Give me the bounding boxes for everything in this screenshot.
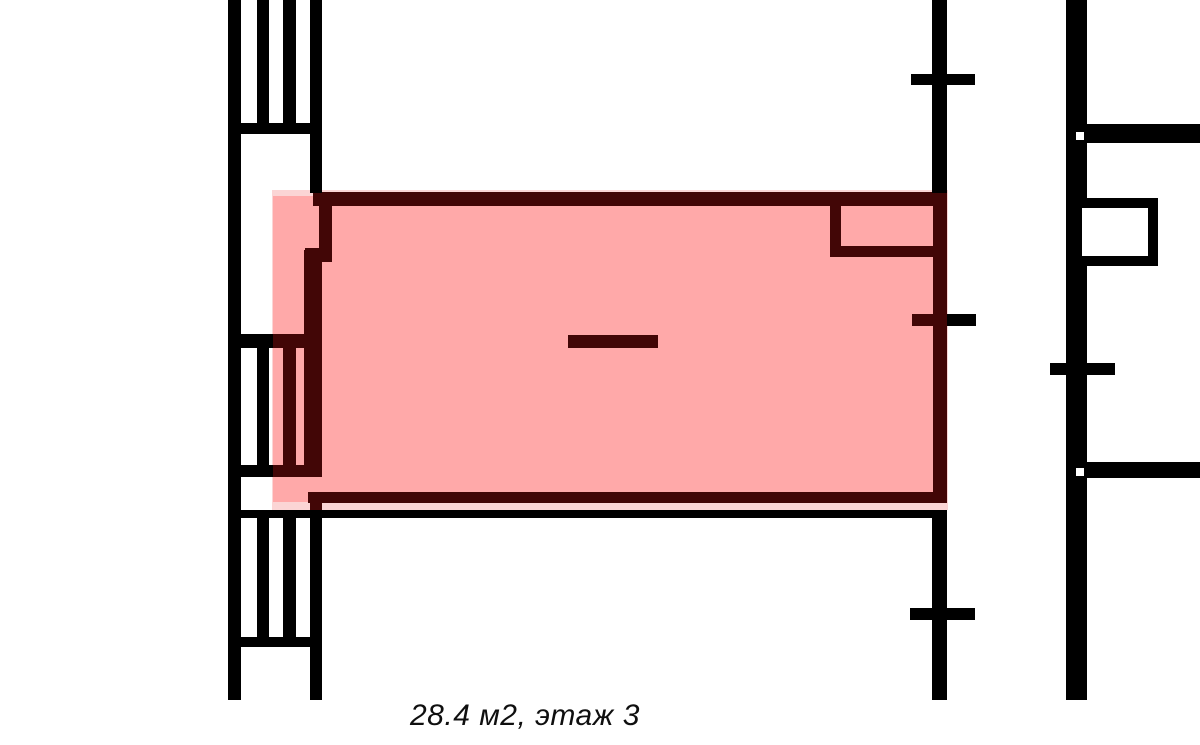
wall-tick-north — [911, 74, 975, 85]
wall-tick-east-outer — [947, 314, 976, 326]
stair-top-rail — [228, 123, 322, 134]
stair-right-wall-lower — [310, 510, 322, 700]
stair-left-wall — [228, 0, 241, 700]
north-wall — [932, 0, 947, 193]
unit-caption: 28.4 м2, этаж 3 — [410, 699, 640, 733]
closet-wall-bottom — [830, 246, 947, 257]
unit-wall-bottom — [308, 492, 947, 503]
interior-wall-segment — [568, 335, 658, 348]
floor-plan: 28.4 м2, этаж 3 — [0, 0, 1200, 745]
stair-bottom-bar-2 — [283, 518, 296, 637]
unit-wall-top — [313, 192, 947, 206]
corridor-wall — [228, 510, 947, 518]
wall-tick-south — [910, 608, 975, 620]
door-gap-upper — [1076, 132, 1084, 140]
unit-room-fill[interactable] — [273, 196, 942, 502]
wall-tick-east-inner — [912, 314, 947, 326]
stair-mid-rail-tinted — [273, 334, 322, 348]
east-shaft-box — [1072, 198, 1158, 266]
stair-top-bar-2 — [283, 0, 296, 123]
stair-top-bar-1 — [257, 0, 269, 123]
unit-wall-right — [933, 192, 947, 503]
stair-bottom-rail — [240, 637, 310, 647]
stair-bottom-bar-1 — [257, 518, 269, 637]
east-hwall-lower — [1087, 462, 1200, 478]
east-wall — [1066, 0, 1087, 700]
stair-mid-bar-1 — [257, 348, 269, 465]
stair-low-rail-tinted — [273, 465, 313, 477]
unit-wall-corner-stub — [310, 502, 322, 510]
unit-wall-left-lower — [304, 250, 322, 477]
stair-mid-rail — [228, 334, 273, 348]
east-hwall-upper — [1087, 124, 1200, 143]
wall-tick-east-corridor — [1050, 363, 1115, 375]
stair-mid-bar-tinted — [283, 348, 296, 465]
stair-low-rail — [238, 465, 273, 477]
door-gap-lower — [1076, 468, 1084, 476]
stair-right-wall-upper — [310, 0, 322, 193]
